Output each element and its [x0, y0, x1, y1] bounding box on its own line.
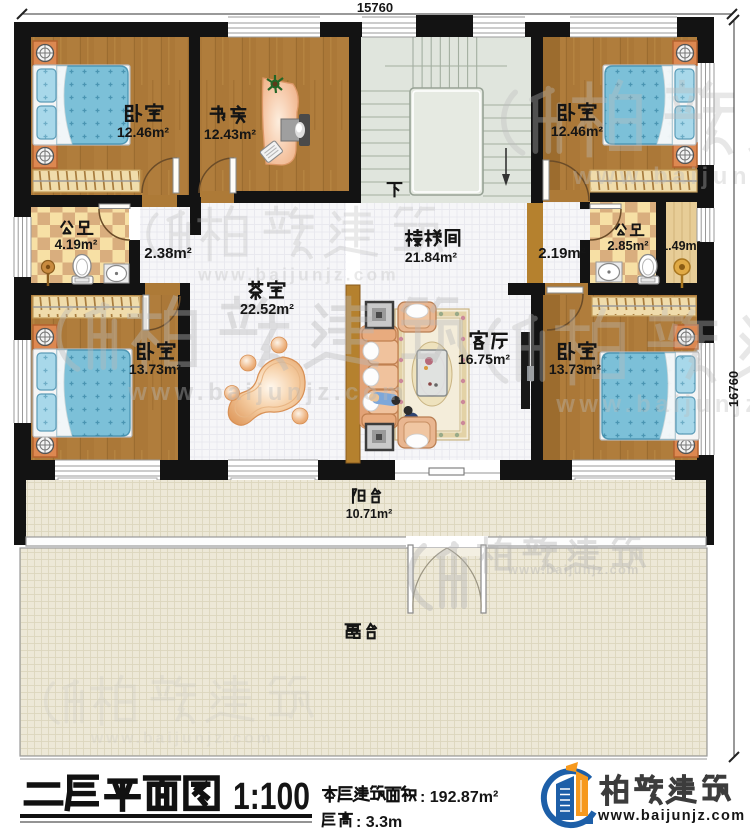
svg-text:12.46m²: 12.46m² [551, 123, 603, 139]
svg-text:21.84m²: 21.84m² [405, 249, 457, 265]
svg-text:22.52m²: 22.52m² [240, 302, 294, 318]
svg-text:13.73m²: 13.73m² [129, 361, 181, 377]
svg-text:15760: 15760 [357, 0, 393, 15]
svg-text:1:100: 1:100 [233, 776, 310, 818]
svg-text:1.49m²: 1.49m² [661, 239, 701, 253]
svg-text:www.baijunjz.com: www.baijunjz.com [597, 808, 746, 824]
svg-text:4.19m²: 4.19m² [55, 237, 98, 252]
svg-text:16760: 16760 [726, 371, 741, 407]
svg-text:2.85m²: 2.85m² [607, 238, 649, 253]
svg-text:10.71m²: 10.71m² [346, 507, 393, 521]
svg-text:12.43m²: 12.43m² [204, 126, 256, 142]
svg-text:: 192.87m²: : 192.87m² [420, 789, 498, 806]
svg-text:13.73m²: 13.73m² [549, 361, 601, 377]
svg-text:: 3.3m: : 3.3m [356, 814, 402, 831]
svg-text:16.75m²: 16.75m² [458, 351, 510, 367]
svg-text:12.46m²: 12.46m² [117, 124, 169, 140]
svg-text:2.19m²: 2.19m² [538, 245, 586, 262]
svg-text:2.38m²: 2.38m² [144, 245, 192, 262]
